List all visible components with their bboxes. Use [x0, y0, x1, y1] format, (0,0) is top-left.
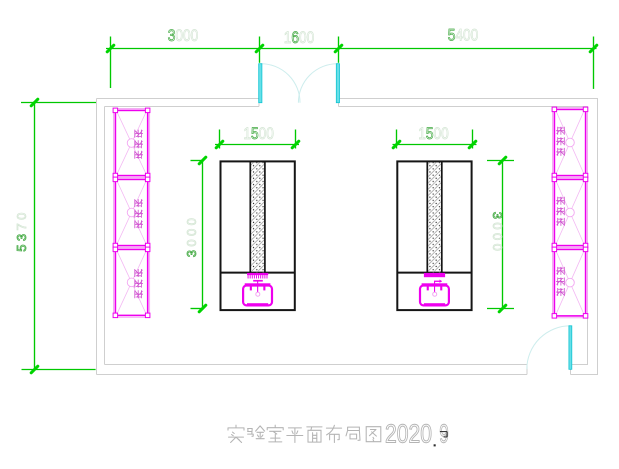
svg-text:1500: 1500 — [418, 124, 449, 143]
svg-text:3000: 3000 — [184, 215, 199, 258]
svg-text:1600: 1600 — [284, 28, 315, 47]
svg-text:5370: 5370 — [14, 209, 29, 252]
svg-text:5400: 5400 — [448, 25, 479, 44]
svg-text:1500: 1500 — [243, 124, 274, 143]
svg-text:3000: 3000 — [168, 26, 199, 45]
svg-text:3000: 3000 — [490, 212, 505, 255]
svg-text:2020: 2020 — [385, 419, 432, 449]
